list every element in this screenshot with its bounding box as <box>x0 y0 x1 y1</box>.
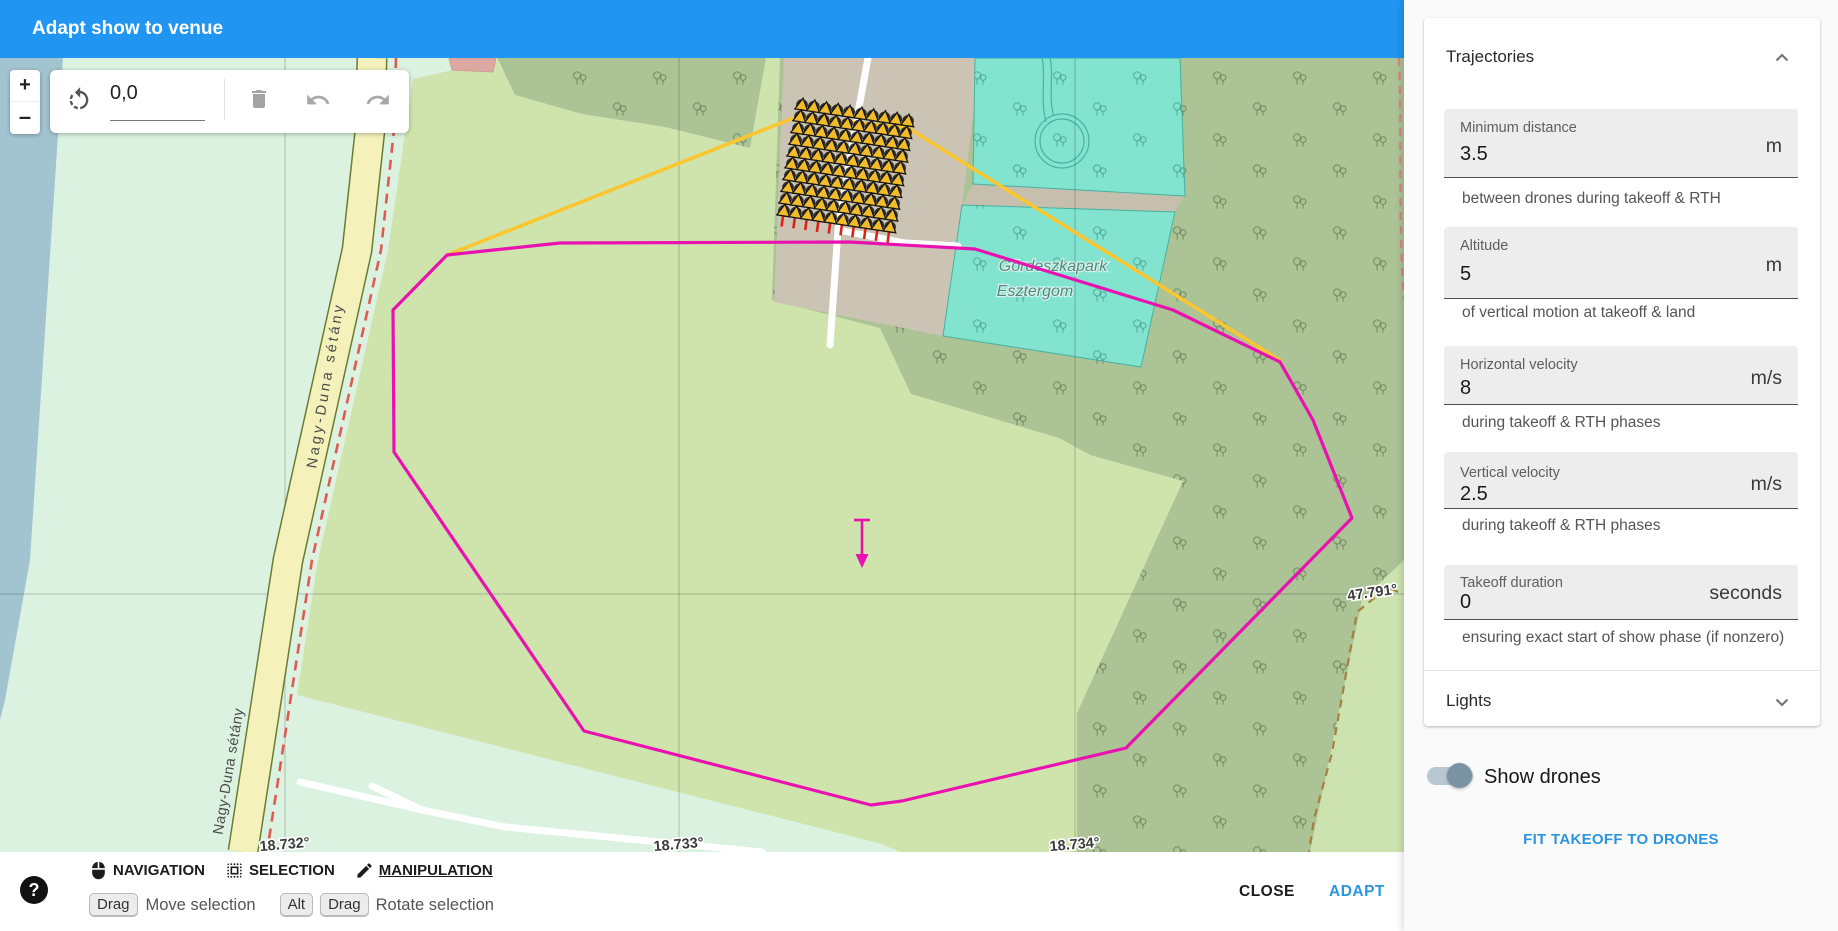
svg-text:Esztergom: Esztergom <box>997 283 1073 300</box>
